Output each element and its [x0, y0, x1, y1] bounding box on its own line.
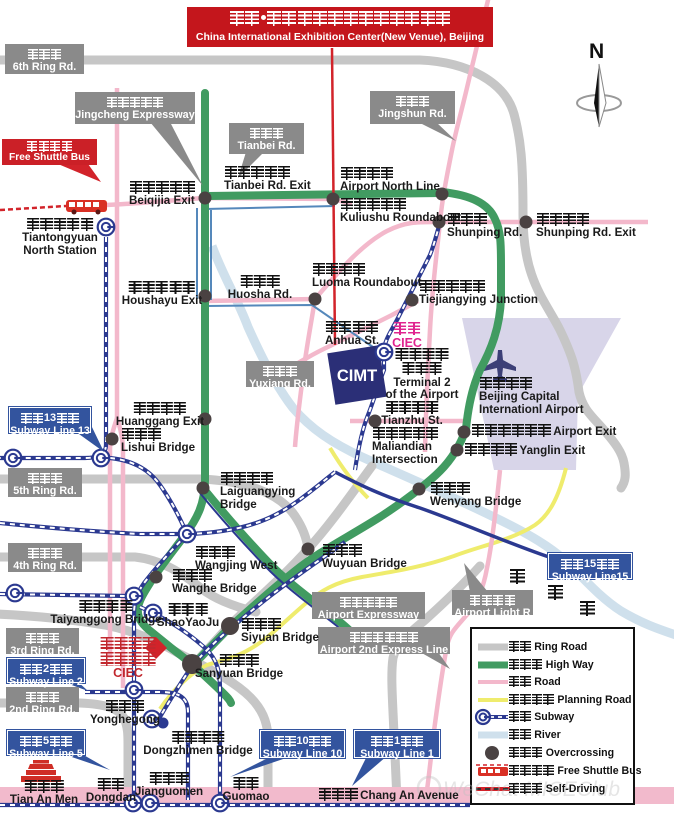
- svg-text:CIMT: CIMT: [337, 367, 377, 385]
